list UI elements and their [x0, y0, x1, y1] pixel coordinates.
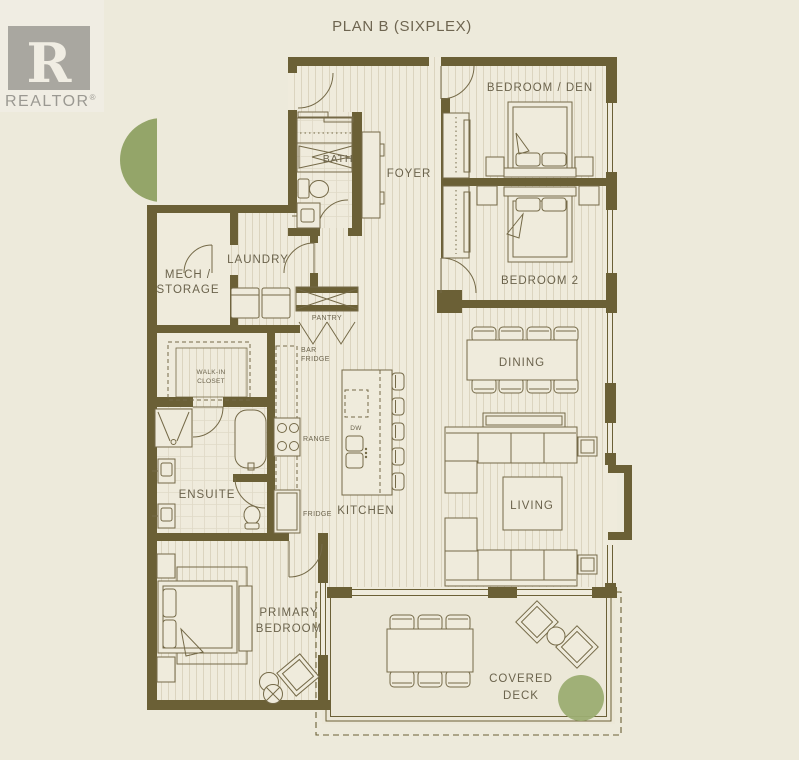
nightstand — [579, 186, 599, 205]
toilet — [244, 506, 260, 524]
bedroom-den-furniture — [443, 102, 593, 178]
svg-text:DECK: DECK — [503, 690, 539, 702]
nightstand — [157, 657, 175, 682]
floor-plan: R REALTOR® PLAN B (SIXPLEX) — [0, 0, 799, 760]
deck-side-table — [547, 627, 565, 645]
label-bar-fridge: BAR — [301, 347, 317, 354]
shower — [155, 409, 192, 447]
toilet — [310, 181, 329, 198]
svg-text:CLOSET: CLOSET — [197, 378, 225, 385]
page-title: PLAN B (SIXPLEX) — [332, 18, 472, 35]
svg-text:BEDROOM: BEDROOM — [256, 623, 322, 635]
label-ensuite: ENSUITE — [179, 489, 236, 501]
logo-word: REALTOR® — [5, 93, 97, 110]
fridge — [274, 490, 300, 533]
bathtub — [235, 410, 266, 468]
deck-table — [387, 629, 473, 672]
label-mech: MECH / — [165, 269, 211, 281]
nightstand — [157, 554, 175, 578]
realtor-logo: R REALTOR® — [0, 0, 104, 112]
nightstand — [486, 157, 504, 176]
bath-sink — [297, 203, 320, 228]
label-laundry: LAUNDRY — [227, 254, 289, 266]
label-fridge: FRIDGE — [303, 511, 332, 518]
label-walkin: WALK-IN — [197, 369, 226, 376]
label-pantry: PANTRY — [312, 315, 342, 322]
label-dw: DW — [350, 425, 362, 432]
label-foyer: FOYER — [387, 168, 432, 180]
label-living: LIVING — [510, 500, 554, 512]
nightstand — [477, 186, 497, 205]
label-bath: BATH — [323, 153, 353, 165]
toilet-tank — [298, 179, 309, 198]
shrub-icon — [558, 675, 604, 721]
label-dining: DINING — [499, 357, 545, 369]
label-range: RANGE — [303, 436, 330, 443]
sideboard — [483, 413, 565, 428]
bench — [239, 586, 252, 651]
svg-text:FRIDGE: FRIDGE — [301, 356, 330, 363]
label-bedroom2: BEDROOM 2 — [501, 275, 579, 287]
kitchen-island — [342, 370, 404, 495]
label-kitchen: KITCHEN — [337, 505, 394, 517]
realtor-r-icon: R — [27, 31, 73, 95]
nightstand — [575, 157, 593, 176]
floor-plan-page: R REALTOR® PLAN B (SIXPLEX) — [0, 0, 799, 760]
svg-text:STORAGE: STORAGE — [156, 284, 219, 296]
label-bedroom-den: BEDROOM / DEN — [487, 82, 593, 94]
label-deck: COVERED — [489, 673, 553, 685]
label-primary: PRIMARY — [259, 607, 318, 619]
